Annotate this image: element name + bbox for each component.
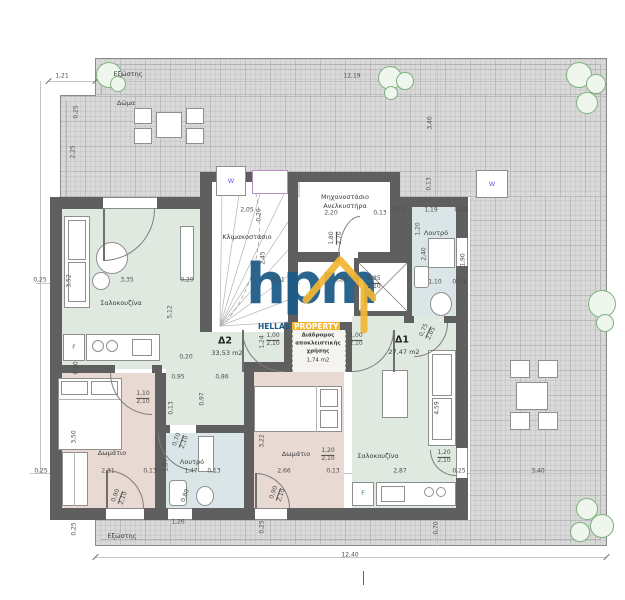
wall xyxy=(200,182,212,332)
wall xyxy=(404,316,414,323)
terrace-chair xyxy=(134,108,152,124)
terrace-chair xyxy=(186,128,204,144)
window-opening xyxy=(456,238,468,266)
skylight-box xyxy=(252,170,288,194)
sofa-cushion xyxy=(68,220,86,260)
terrace-chair xyxy=(538,360,558,378)
window-opening xyxy=(168,508,192,520)
terrace-chair xyxy=(134,128,152,144)
label-bedroom-d2: Δωμάτιο xyxy=(98,450,126,457)
sofa-cushion xyxy=(432,398,452,440)
wall xyxy=(244,372,254,508)
label-bath-d2: Λουτρό xyxy=(180,459,204,466)
pouf xyxy=(92,272,110,290)
terrace-boundary xyxy=(95,520,96,546)
bush xyxy=(586,74,606,94)
scale-mark xyxy=(363,571,364,585)
shower xyxy=(198,436,214,472)
wall xyxy=(400,207,412,258)
shower xyxy=(428,238,455,268)
wall xyxy=(444,316,456,323)
pillow xyxy=(61,381,88,395)
dimension-label: 0,25 xyxy=(72,522,79,535)
dim-tick xyxy=(603,554,609,560)
fridge-label: F xyxy=(361,491,364,497)
bed-line xyxy=(58,399,122,400)
terrace-boundary xyxy=(95,545,607,546)
dim-line xyxy=(40,81,41,473)
bush xyxy=(384,86,398,100)
balcony-hatch-bottom xyxy=(95,520,470,546)
stove-burner xyxy=(106,340,118,352)
dimension-label: 0,25 xyxy=(34,469,47,476)
toilet xyxy=(196,486,214,506)
stove-burner xyxy=(436,487,446,497)
balcony-door-opening xyxy=(255,508,287,520)
bush xyxy=(596,314,614,332)
label-bath-d1: Λουτρό xyxy=(424,230,448,237)
dimension-label: 1,21 xyxy=(55,74,68,81)
sofa-cushion xyxy=(432,354,452,396)
bed-line xyxy=(316,386,317,432)
skylight-w-label: W xyxy=(489,180,495,188)
washbasin xyxy=(414,266,429,288)
label-corridor-area: 1,74 m2 xyxy=(307,358,330,364)
dim-line xyxy=(437,520,438,546)
railing-line xyxy=(101,539,601,540)
dimension-label: 12,40 xyxy=(341,553,358,560)
label-apt-d1-area: 27,47 m2 xyxy=(388,349,419,356)
sofa-cushion xyxy=(68,262,86,302)
closet-line xyxy=(74,452,75,506)
balcony-door-opening xyxy=(103,197,157,209)
dim-line xyxy=(437,62,438,197)
watermark-brand-top: HELLAS xyxy=(258,322,290,331)
bush xyxy=(576,92,598,114)
floor-plan: W W F F hpm xyxy=(0,0,625,600)
railing-line xyxy=(66,101,67,197)
bush xyxy=(590,514,614,538)
label-balcony-bottom: Εξώστης xyxy=(107,533,136,540)
coffee-table xyxy=(382,370,408,418)
dim-line xyxy=(48,81,607,82)
balcony-door-opening xyxy=(106,508,144,520)
pillow xyxy=(320,410,338,428)
balcony-door-opening xyxy=(456,448,468,478)
label-living-d2: Σαλοκουζίνα xyxy=(100,300,141,307)
label-corridor-3: χρήσης xyxy=(307,349,330,355)
label-apt-d2: Δ2 xyxy=(218,336,232,346)
door-leaf xyxy=(103,209,105,261)
bush xyxy=(396,72,414,90)
terrace-chair xyxy=(510,412,530,430)
stove-burner xyxy=(424,487,434,497)
terrace-table xyxy=(156,112,182,138)
terrace-chair xyxy=(186,108,204,124)
skylight-w-label: W xyxy=(228,177,234,185)
closet xyxy=(62,452,88,506)
railing-line xyxy=(101,64,601,65)
kitchen-sink xyxy=(132,339,152,356)
terrace-boundary xyxy=(60,95,96,96)
wall xyxy=(196,425,254,433)
washbasin xyxy=(169,480,187,506)
wall xyxy=(390,182,400,262)
wall xyxy=(50,365,115,373)
stove-burner xyxy=(92,340,104,352)
wall xyxy=(152,365,162,373)
label-machine-room-2: Ανελκυστήρα xyxy=(323,203,367,210)
label-machine-room-1: Μηχανοστάσιο xyxy=(321,194,369,201)
door-leaf xyxy=(106,470,108,508)
terrace-table xyxy=(516,382,548,410)
cabinet xyxy=(180,226,194,280)
label-corridor-2: αποκλειστικής xyxy=(295,341,341,347)
pillow xyxy=(320,389,338,407)
bush xyxy=(570,522,590,542)
kitchen-sink xyxy=(381,486,405,502)
label-terrace: Δώμα xyxy=(117,100,135,107)
label-living-d1: Σαλοκουζίνα xyxy=(357,453,398,460)
watermark-house-icon xyxy=(296,246,376,334)
label-apt-d2-area: 33,53 m2 xyxy=(211,350,242,357)
wall xyxy=(50,197,62,520)
fridge-label: F xyxy=(72,345,75,351)
bush xyxy=(110,76,126,92)
terrace-chair xyxy=(510,360,530,378)
door-leaf xyxy=(255,473,257,508)
terrace-chair xyxy=(538,412,558,430)
label-bedroom-d1: Δωμάτιο xyxy=(282,451,310,458)
label-apt-d1: Δ1 xyxy=(395,335,409,345)
dim-line xyxy=(95,557,607,558)
wall xyxy=(166,425,170,433)
toilet xyxy=(430,292,452,316)
label-balcony-top: Εξώστης xyxy=(113,71,142,78)
wall xyxy=(400,197,468,207)
terrace-boundary xyxy=(60,95,61,197)
label-stairwell: Κλιμακοστάσιο xyxy=(222,234,271,241)
label-corridor-1: Διάδρομος xyxy=(302,333,335,339)
terrace-boundary xyxy=(95,58,607,59)
